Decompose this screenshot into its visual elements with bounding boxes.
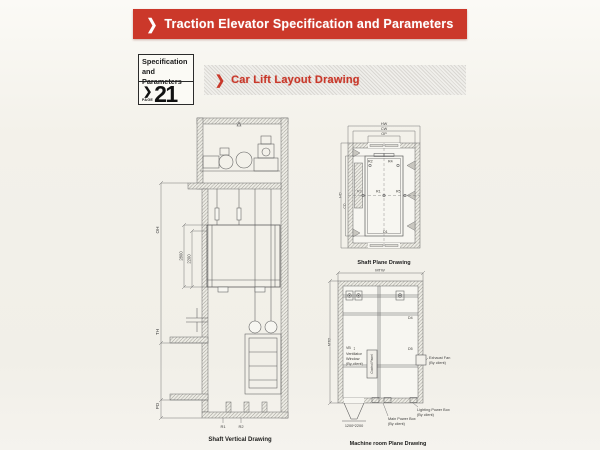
shaft-plane-drawing: HW CW OP HD CD R2 R4 R3 R1 R5 D1 Shaft P… [330, 118, 475, 270]
ventilator-line2: Window [346, 357, 360, 361]
counterweight [245, 321, 281, 394]
counterweight-plan [355, 163, 363, 208]
dim-label-mtd: MTD [327, 338, 332, 347]
dim-label-op: OP [381, 132, 387, 136]
control-panel-label: Control Panel [370, 354, 374, 374]
machine-room-door [342, 403, 366, 421]
shaft-vertical-drawing: OH TH PD 2800 2200 R1 R2 Shaft Vertical … [140, 108, 310, 448]
page-number: 21 [154, 83, 177, 106]
label-r5: R5 [396, 190, 401, 194]
chevron-icon: ❯ [215, 73, 225, 86]
chevron-icon: ❯ [146, 17, 157, 32]
page-index-line1: Specification [142, 57, 190, 67]
hoist-ropes [215, 189, 271, 321]
pit-buffers [226, 402, 267, 412]
dim-label-cd: CD [343, 203, 347, 209]
section-banner: ❯ Car Lift Layout Drawing [204, 65, 466, 95]
label-r1: R1 [376, 190, 381, 194]
shaft-walls [170, 118, 288, 418]
page-label: PAGE [142, 98, 153, 102]
control-panel: Control Panel [367, 350, 377, 378]
dim-label-2800: 2800 [179, 251, 184, 261]
header-banner: ❯ Traction Elevator Specification and Pa… [133, 9, 467, 39]
exhaust-fan: Exhaust Fan (By client) [416, 355, 450, 365]
dim-label-cw: CW [381, 127, 388, 131]
vertical-dimensions [159, 181, 241, 423]
machine-room-caption: Machine room Plane Drawing [350, 441, 427, 447]
catalog-page: ❯ Traction Elevator Specification and Pa… [0, 0, 600, 450]
label-d5: D5 [408, 347, 413, 351]
machine-room-walls [338, 281, 423, 403]
dim-label-hw: HW [381, 122, 388, 126]
main-power-line1: Main Power Box [388, 417, 416, 421]
door-size-label: 1200*2200 [345, 424, 363, 428]
lighting-power-line1: Lighting Power Box [417, 408, 450, 412]
shaft-vertical-caption: Shaft Vertical Drawing [208, 437, 272, 443]
page-title: Traction Elevator Specification and Para… [164, 17, 453, 31]
page-index-box: Specification and Parameters ❯ PAGE 21 [138, 54, 194, 105]
ventilator-line1: Ventilator [346, 352, 363, 356]
dim-label-pd: PD [155, 402, 160, 409]
dim-label-mtw: MTW [375, 268, 385, 273]
label-r3: R3 [357, 190, 362, 194]
dim-label-2200: 2200 [187, 254, 192, 264]
label-r2: R2 [368, 160, 373, 164]
elevator-car [207, 225, 280, 292]
lighting-power-line2: (By client) [417, 413, 435, 417]
main-power-box-annotation: Main Power Box (By client) [383, 403, 416, 426]
label-r2: R2 [238, 424, 244, 429]
exhaust-fan-line1: Exhaust Fan [429, 356, 450, 360]
page-number-row: ❯ PAGE 21 [139, 82, 193, 106]
label-d4: D4 [408, 316, 413, 320]
label-d1: D1 [383, 230, 388, 234]
traction-machine [200, 136, 280, 171]
main-power-line2: (By client) [388, 422, 406, 426]
ventilator-line3: (By client) [346, 362, 364, 366]
lighting-power-box-annotation: Lighting Power Box (By client) [413, 403, 450, 417]
label-r1: R1 [220, 424, 226, 429]
page-chevron: ❯ PAGE [142, 87, 153, 102]
exhaust-fan-line2: (By client) [429, 361, 447, 365]
machine-room-plane-drawing: Control Panel VB ↕ Ventilator Window (By… [322, 262, 480, 450]
dim-label-th: TH [155, 329, 160, 335]
section-title: Car Lift Layout Drawing [231, 74, 360, 86]
page-index-caption: Specification and Parameters [139, 55, 193, 82]
vb-label: VB [346, 346, 351, 350]
dim-label-oh: OH [155, 227, 160, 234]
label-r4: R4 [388, 160, 393, 164]
dim-label-hd: HD [339, 192, 343, 198]
chevron-icon: ❯ [143, 87, 152, 98]
